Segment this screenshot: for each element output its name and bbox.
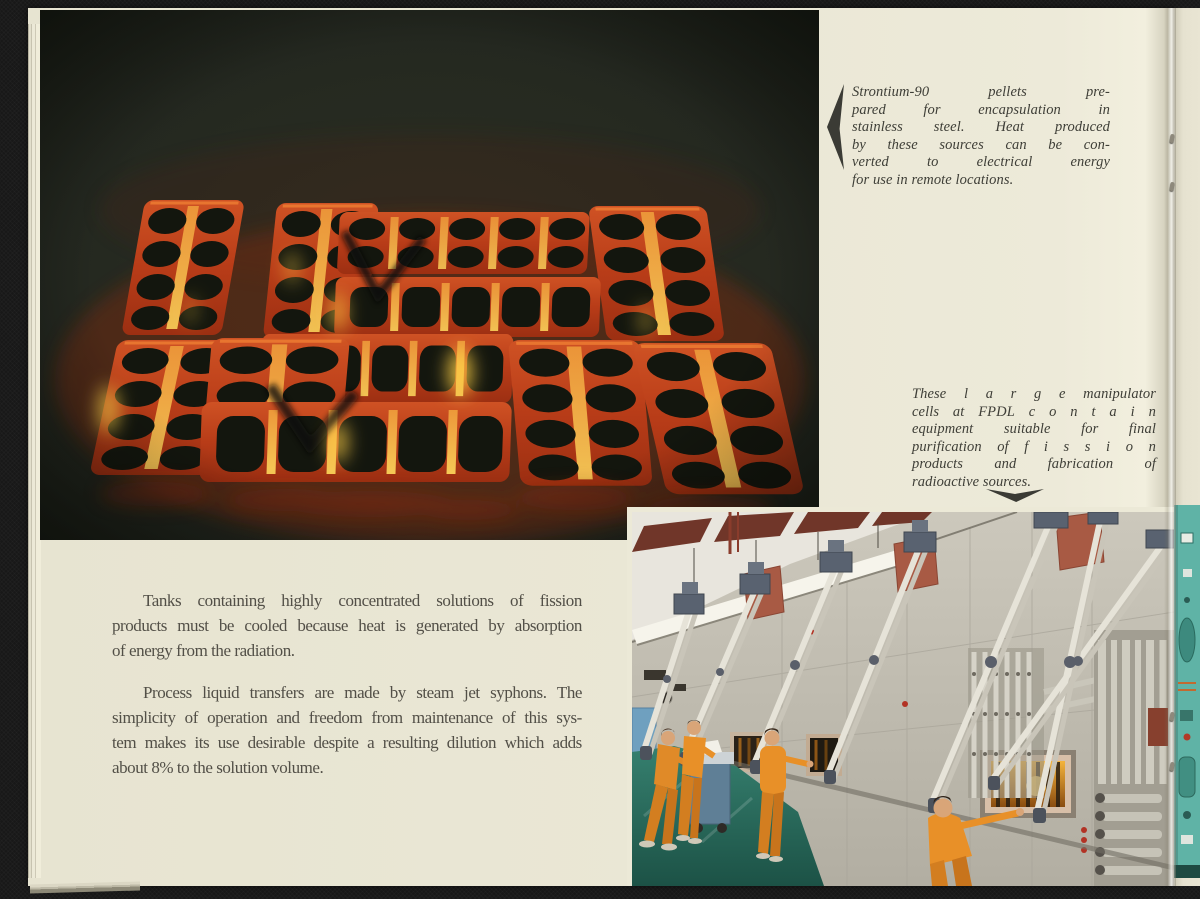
pellet-trays-illustration: [40, 10, 819, 540]
pellet-trays-photo: [40, 10, 819, 540]
bottom-page-edge-curl: [30, 881, 140, 893]
body-text: Tankscontaininghighlyconcentratedsolutio…: [112, 591, 582, 800]
next-page-teal-panel: [1174, 505, 1200, 878]
left-arrow-icon: [827, 84, 844, 170]
paragraph-tanks: Tankscontaininghighlyconcentratedsolutio…: [112, 591, 582, 666]
next-page-sliver: [1174, 8, 1200, 886]
manipulator-cells-illustration: [632, 512, 1174, 886]
book-page: Strontium-90pelletspre-paredforencapsula…: [28, 8, 1174, 886]
caption-strontium: Strontium-90pelletspre-paredforencapsula…: [852, 84, 1110, 189]
scanned-book-spread: Strontium-90pelletspre-paredforencapsula…: [0, 0, 1200, 899]
caption-manipulator: TheselargemanipulatorcellsatFPDLcontaine…: [912, 386, 1156, 491]
manipulator-cells-photo: [627, 507, 1174, 886]
paragraph-process: Processliquidtransfersaremadebysteamjets…: [112, 683, 582, 783]
